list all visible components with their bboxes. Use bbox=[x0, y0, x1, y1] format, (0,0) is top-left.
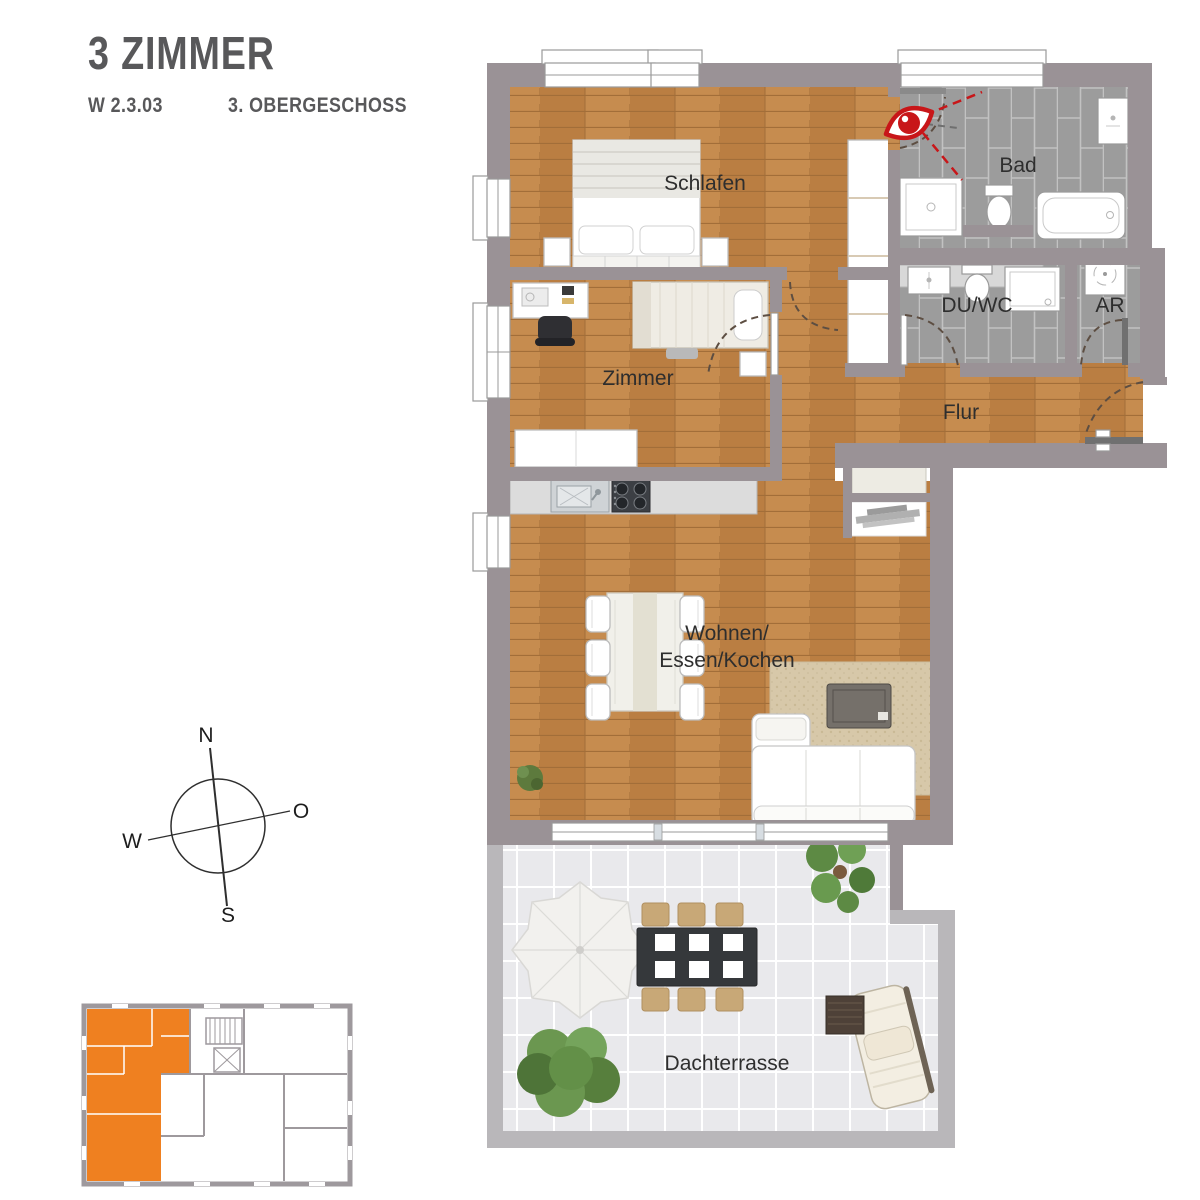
room-label-wohnen-line1: Wohnen/ bbox=[685, 622, 769, 645]
desk-chair bbox=[535, 316, 575, 346]
room-label-dachterrasse: Dachterrasse bbox=[665, 1052, 790, 1075]
room-label-bad: Bad bbox=[999, 154, 1036, 177]
zimmer-door-leaf bbox=[771, 313, 778, 375]
compass-rose: N O W S bbox=[122, 724, 309, 927]
cooktop bbox=[612, 480, 650, 512]
toilet-bad bbox=[985, 185, 1013, 228]
duwc-door-leaf bbox=[901, 315, 907, 365]
floor-label: 3. OBERGESCHOSS bbox=[228, 94, 407, 118]
compass-south: S bbox=[221, 904, 235, 927]
passage-floor bbox=[782, 443, 835, 481]
compass-east: O bbox=[293, 800, 309, 823]
single-bed bbox=[633, 282, 768, 359]
room-label-schlafen: Schlafen bbox=[664, 172, 746, 195]
bad-door-leaf bbox=[900, 88, 946, 94]
terrace-notch bbox=[903, 845, 955, 912]
nightstand-left bbox=[544, 238, 570, 266]
side-table bbox=[740, 352, 766, 376]
keyplan-stairs bbox=[206, 1018, 242, 1044]
header: 3 ZIMMER W 2.3.03 3. OBERGESCHOSS bbox=[88, 26, 439, 118]
compass-north: N bbox=[198, 724, 213, 747]
shower-duwc bbox=[1005, 267, 1060, 311]
keyplan bbox=[82, 1004, 352, 1186]
vanity-bad bbox=[1098, 98, 1128, 144]
compass-west: W bbox=[122, 830, 142, 853]
room-label-duwc: DU/WC bbox=[941, 294, 1012, 317]
living-plant bbox=[517, 765, 543, 791]
zimmer-cabinet bbox=[515, 430, 637, 467]
ar-door-leaf bbox=[1122, 318, 1128, 365]
room-label-ar: AR bbox=[1095, 294, 1124, 317]
keyplan-elevator bbox=[214, 1048, 240, 1072]
entrance-door-leaf bbox=[1085, 437, 1143, 444]
coffee-table bbox=[827, 684, 891, 728]
floorplan-page: 3 ZIMMER W 2.3.03 3. OBERGESCHOSS bbox=[0, 0, 1200, 1200]
unit-code: W 2.3.03 bbox=[88, 94, 163, 118]
lounger-side-table bbox=[826, 996, 864, 1034]
desk bbox=[513, 283, 588, 318]
shower bbox=[900, 178, 962, 236]
parasol bbox=[512, 882, 648, 1018]
floorplan-drawing: Schlafen Zimmer Bad DU/WC AR Flur Wohnen… bbox=[0, 0, 1200, 1200]
corridor-floor bbox=[782, 280, 848, 443]
double-bed bbox=[573, 140, 700, 270]
room-label-wohnen-line2: Essen/Kochen bbox=[659, 649, 794, 672]
bathtub bbox=[1037, 192, 1125, 239]
page-title: 3 ZIMMER bbox=[88, 26, 275, 80]
nightstand-right bbox=[702, 238, 728, 266]
room-label-flur: Flur bbox=[943, 401, 979, 424]
header-subtitle: W 2.3.03 3. OBERGESCHOSS bbox=[88, 94, 439, 118]
room-label-zimmer: Zimmer bbox=[602, 367, 673, 390]
outdoor-table bbox=[637, 928, 757, 986]
wardrobe bbox=[848, 140, 890, 373]
